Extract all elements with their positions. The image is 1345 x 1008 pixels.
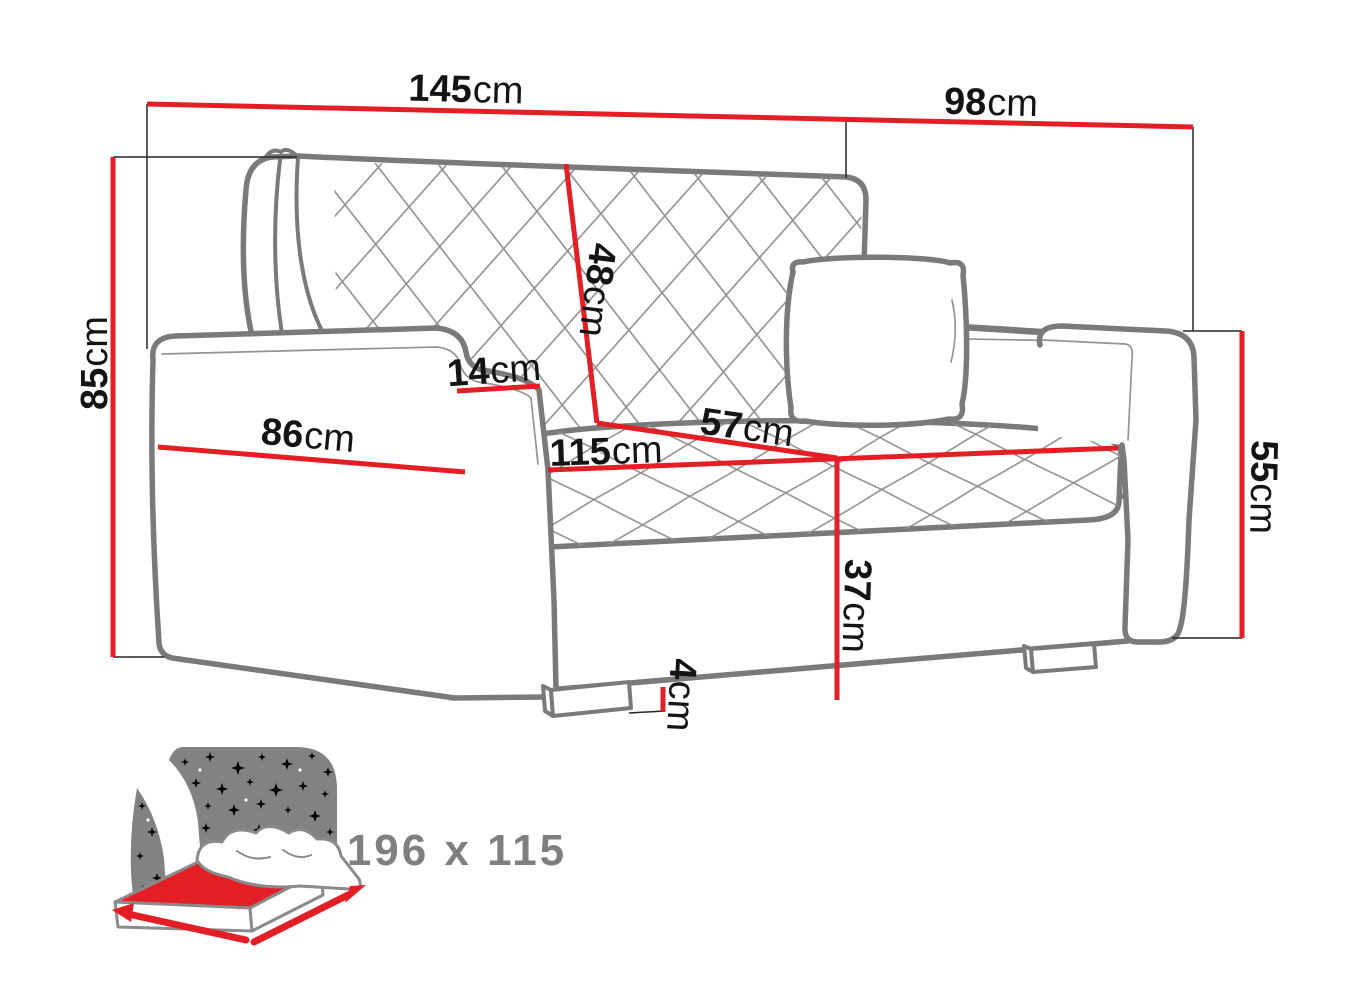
sleeping-area-size-label: 196 x 115 bbox=[347, 826, 567, 876]
diagram-art bbox=[0, 0, 1345, 1008]
dim-label-total-depth: 98cm bbox=[944, 83, 1039, 123]
dim-unit: cm bbox=[570, 284, 618, 339]
dim-value: 115 bbox=[549, 431, 612, 475]
dim-label-armrest-length: 86cm bbox=[260, 413, 357, 459]
dim-unit: cm bbox=[1241, 483, 1284, 534]
dim-unit: cm bbox=[611, 429, 663, 473]
sofa-dimension-diagram: 145cm 98cm 85cm 48cm 14cm 86cm 115cm 57c… bbox=[0, 0, 1345, 1008]
dim-label-armrest-top-width: 14cm bbox=[446, 349, 542, 393]
dim-unit: cm bbox=[833, 602, 877, 654]
dim-value: 98 bbox=[943, 81, 986, 124]
dim-label-seat-height: 37cm bbox=[835, 558, 876, 653]
dim-value: 48 bbox=[577, 241, 624, 288]
dim-label-total-height: 85cm bbox=[76, 316, 114, 410]
dim-label-seat-width: 115cm bbox=[549, 431, 663, 473]
dim-unit: cm bbox=[658, 680, 703, 733]
dim-unit: cm bbox=[489, 347, 542, 392]
dim-value: 86 bbox=[259, 411, 305, 457]
dim-label-total-width: 145cm bbox=[408, 70, 524, 111]
dim-value: 57 bbox=[698, 401, 746, 448]
sleeping-function-icon bbox=[112, 747, 366, 942]
dim-unit: cm bbox=[472, 69, 524, 112]
dim-value: 37 bbox=[835, 558, 878, 602]
dim-unit: cm bbox=[302, 415, 356, 461]
sofa-pillow bbox=[786, 257, 966, 425]
dim-unit: cm bbox=[740, 407, 796, 456]
dim-unit: cm bbox=[987, 82, 1039, 125]
dim-value: 85 bbox=[74, 368, 116, 410]
dim-value: 145 bbox=[408, 68, 472, 112]
dim-value: 4 bbox=[661, 658, 704, 681]
dim-unit: cm bbox=[74, 316, 116, 367]
dim-label-armrest-height: 55cm bbox=[1243, 440, 1283, 535]
dim-value: 14 bbox=[446, 350, 491, 395]
dim-label-leg-height: 4cm bbox=[660, 658, 702, 733]
dim-value: 55 bbox=[1242, 440, 1285, 483]
